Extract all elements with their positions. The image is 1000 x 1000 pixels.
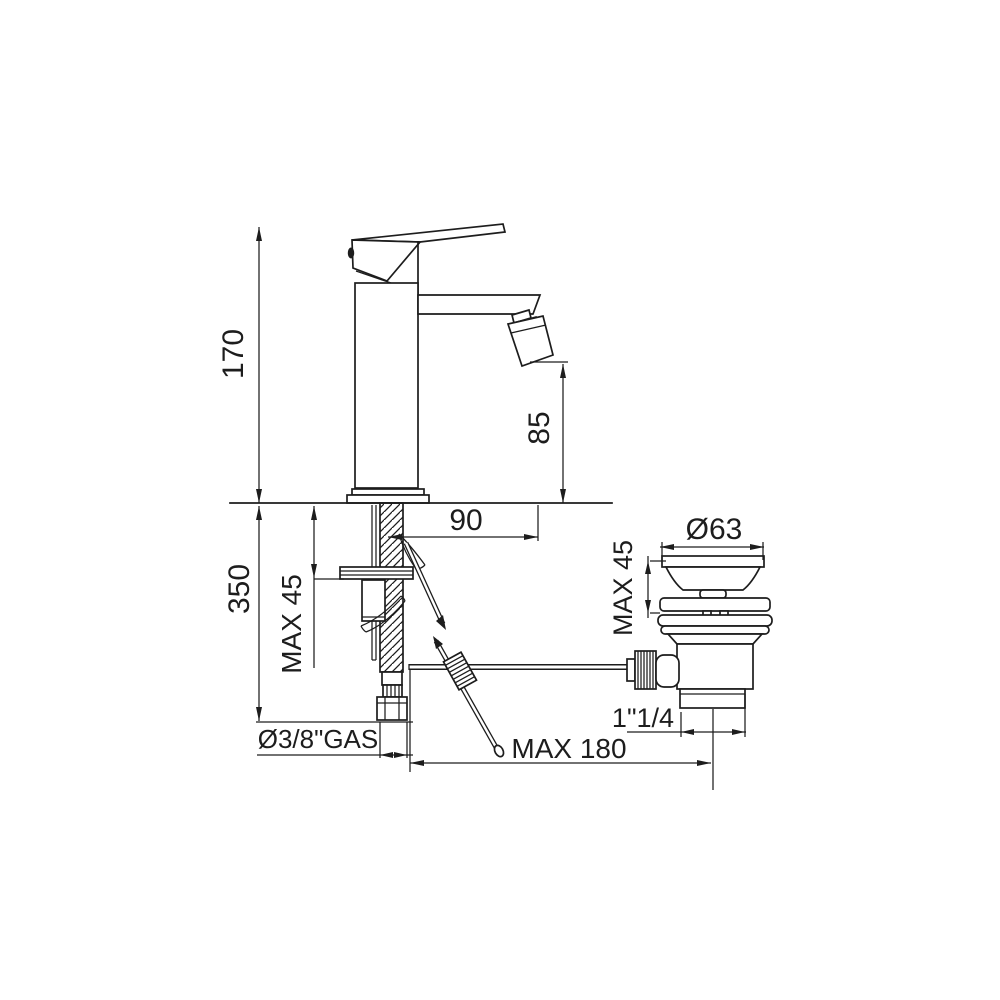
faucet bbox=[347, 224, 553, 503]
faucet-body bbox=[355, 283, 418, 488]
dimension-spout-outlet-height: 85 bbox=[523, 362, 568, 503]
base-plate-flange bbox=[347, 495, 429, 503]
dimension-waste-flange-diameter: Ø63 bbox=[660, 513, 764, 560]
aerator-body bbox=[508, 316, 553, 366]
dim-label-rod-horizontal-max: MAX 180 bbox=[511, 733, 626, 764]
waste-tailpiece bbox=[680, 689, 745, 708]
technical-drawing-canvas: 170 350 MAX 45 90 85 Ø3/8"GAS Ø63 bbox=[0, 0, 1000, 1000]
dimension-supply-connection: Ø3/8"GAS bbox=[257, 722, 413, 758]
waste-cap bbox=[662, 556, 764, 567]
dim-label-supply-connection: Ø3/8"GAS bbox=[258, 724, 379, 754]
faucet-spout bbox=[418, 295, 540, 314]
dim-label-deck-thickness-waste: MAX 45 bbox=[608, 540, 638, 636]
waste-gasket-ring bbox=[658, 615, 772, 626]
handle-set-screw bbox=[348, 248, 354, 259]
dim-label-spout-reach: 90 bbox=[449, 504, 482, 537]
waste-flange-ring bbox=[660, 598, 770, 611]
dimension-deck-thickness-faucet: MAX 45 bbox=[276, 506, 344, 674]
waste-lower-ring bbox=[661, 626, 769, 634]
waste-body bbox=[677, 644, 753, 689]
faucet-lever bbox=[352, 224, 505, 242]
mounting-washer bbox=[340, 567, 413, 579]
dim-label-waste-flange-diameter: Ø63 bbox=[686, 513, 743, 546]
base-plate-upper bbox=[352, 489, 424, 495]
ball-joint-collar bbox=[627, 659, 635, 681]
waste-funnel bbox=[666, 567, 760, 590]
waste-plug-tab bbox=[700, 590, 726, 598]
ball-joint-socket bbox=[656, 655, 679, 687]
dim-label-deck-thickness-faucet: MAX 45 bbox=[276, 574, 307, 674]
dim-label-waste-thread: 1"1/4 bbox=[612, 703, 674, 733]
dimension-total-height: 170 bbox=[217, 227, 262, 503]
dim-label-spout-outlet-height: 85 bbox=[523, 411, 556, 444]
pop-up-rod-linkage bbox=[406, 543, 628, 758]
supply-nut bbox=[377, 697, 407, 720]
rod-adjuster bbox=[443, 652, 476, 690]
bidet-mixer-dimension-drawing: 170 350 MAX 45 90 85 Ø3/8"GAS Ø63 bbox=[0, 0, 1000, 1000]
faucet-handle-base bbox=[352, 240, 420, 281]
below-deck-assembly bbox=[340, 503, 425, 720]
pop-up-waste-assembly bbox=[627, 556, 772, 708]
dim-label-below-deck-height: 350 bbox=[223, 564, 256, 614]
hose-end-sleeve bbox=[382, 672, 402, 685]
dim-label-total-height: 170 bbox=[217, 329, 250, 379]
dimension-spout-reach: 90 bbox=[388, 504, 538, 541]
waste-shoulder bbox=[668, 634, 762, 644]
